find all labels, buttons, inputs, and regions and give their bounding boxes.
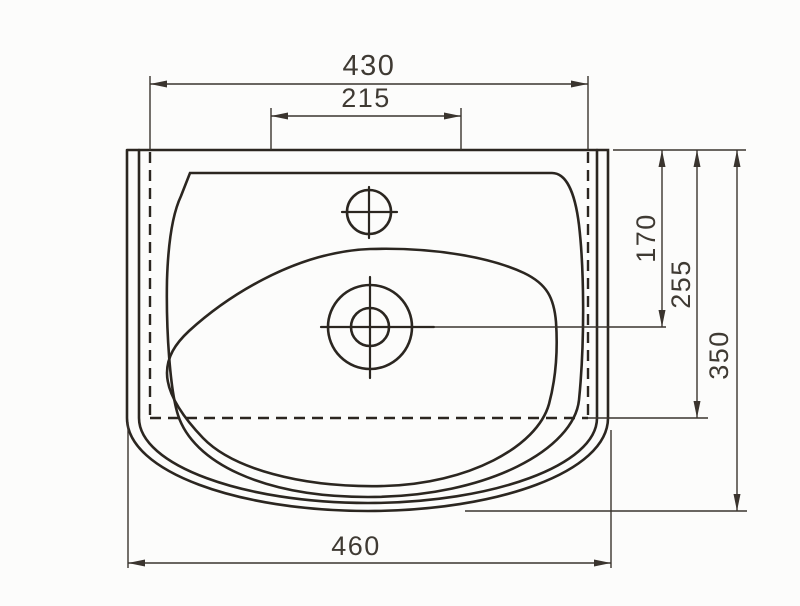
dim-label-460: 460 <box>331 531 381 561</box>
arrow-right <box>571 81 588 88</box>
drawing-canvas: 430 215 460 170 255 <box>0 0 800 606</box>
dimension-215: 215 <box>271 83 461 150</box>
dimension-460: 460 <box>128 422 611 568</box>
ext-line <box>271 108 461 150</box>
dim-label-255: 255 <box>666 259 696 309</box>
dim-label-170: 170 <box>631 213 661 263</box>
arrow-left <box>128 560 145 567</box>
arrow-top <box>734 150 741 167</box>
drain <box>321 277 434 378</box>
washbasin-technical-drawing: 430 215 460 170 255 <box>0 0 800 606</box>
arrow-left <box>150 81 167 88</box>
arrow-right <box>594 560 611 567</box>
dim-label-350: 350 <box>704 330 734 380</box>
arrow-bottom <box>659 310 666 327</box>
dim-label-215: 215 <box>341 83 391 113</box>
arrow-right <box>444 113 461 120</box>
arrow-left <box>271 113 288 120</box>
dimension-170: 170 <box>631 150 666 327</box>
deck-outline <box>167 173 583 497</box>
arrow-top <box>659 150 666 167</box>
dimension-255: 255 <box>666 150 701 418</box>
arrow-bottom <box>694 401 701 418</box>
arrow-top <box>694 150 701 167</box>
arrow-bottom <box>734 494 741 511</box>
faucet-hole <box>342 187 397 238</box>
dim-label-430: 430 <box>343 50 396 82</box>
dimension-350: 350 <box>704 150 741 511</box>
